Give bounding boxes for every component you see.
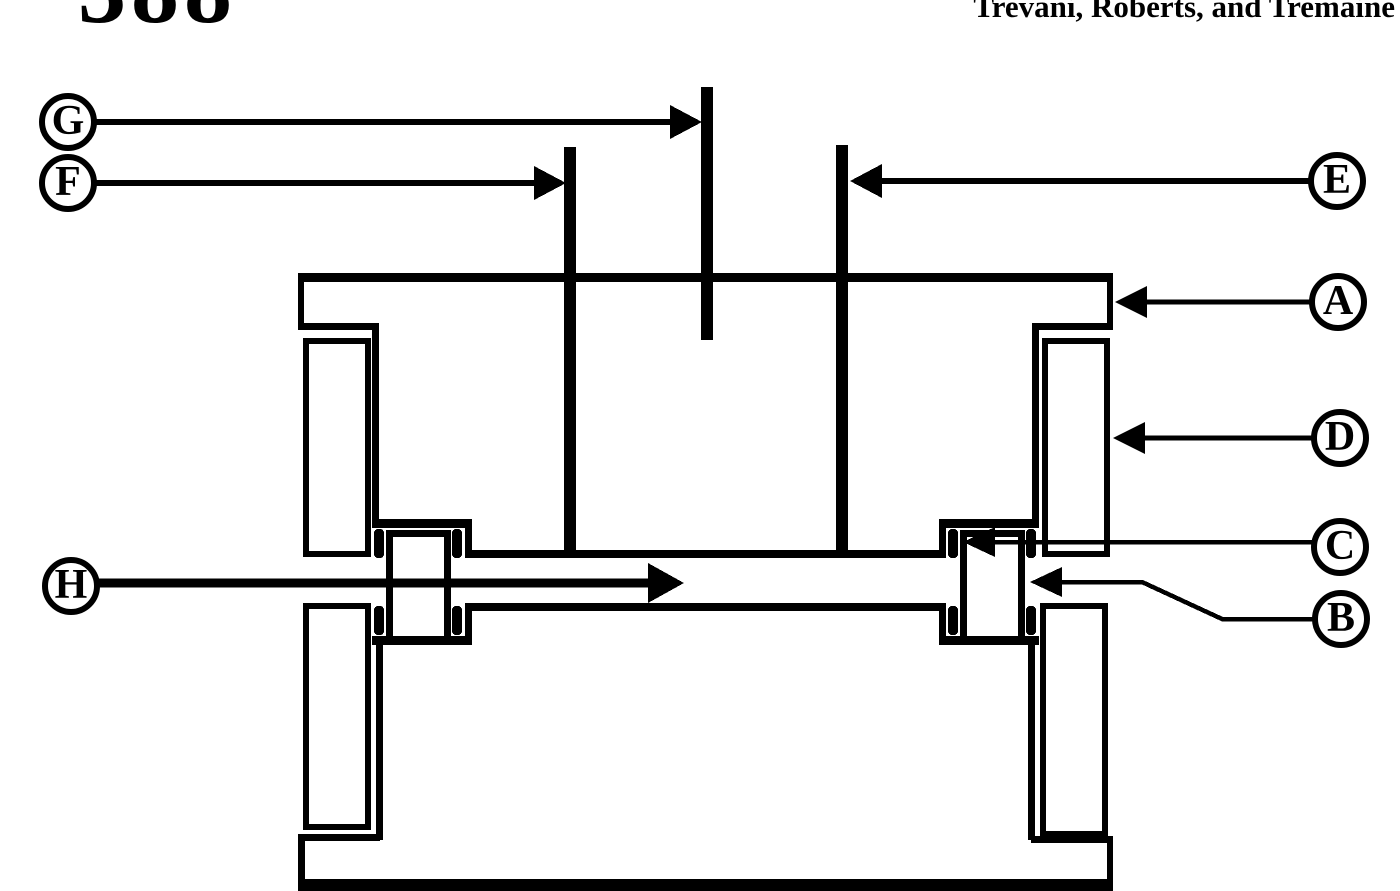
left-window-seal-bottom-inner [452,606,462,635]
callout-label-A: A [1309,273,1367,331]
scanned-paper-page: 388 Trevani, Roberts, and Tremaine [0,0,1400,891]
arrowhead-D [1113,422,1145,454]
left-window-seal-top-inner [452,529,462,558]
callout-label-C: C [1311,518,1369,576]
callout-label-B: B [1312,590,1370,648]
callout-label-E: E [1308,152,1366,210]
center-tube-G [701,87,713,340]
lower-inner-wall-left [376,641,383,840]
upper-inner-wall-left [372,323,379,528]
callout-label-F: F [39,154,97,212]
bottom-plate-bottom-edge [298,879,1113,891]
leader-line-B [1058,582,1313,619]
bottom-plate-right-top [1031,836,1113,843]
bottom-plate-left-top [298,834,380,841]
lower-left-block [306,606,368,827]
right-tube-E [836,145,848,554]
light-path-channel-bottom [468,603,943,611]
upper-inner-wall-right [1032,323,1039,528]
apparatus-cross-section-figure [0,0,1400,891]
right-window-seal-top-inner [948,529,958,558]
arrowhead-A [1115,286,1147,318]
top-plate-right-underside [1032,323,1113,330]
top-plate-left-underside [298,323,379,330]
left-seat-top-shoulder [372,519,472,528]
upper-left-block [306,341,368,554]
right-seat-top-shoulder [939,519,1039,528]
left-window-seal-bottom-outer [374,606,384,635]
arrowhead-H [648,563,684,603]
callout-label-G: G [39,93,97,151]
upper-right-block [1045,341,1107,554]
arrowhead-F [534,166,566,200]
lower-right-block [1043,606,1105,834]
top-plate-left-edge [298,273,304,330]
left-window-seal-top-outer [374,529,384,558]
callout-label-D: D [1311,409,1369,467]
top-plate-right-edge [1107,273,1113,330]
light-path-channel-top [468,550,943,558]
callout-label-H: H [42,557,100,615]
arrowhead-G [670,105,702,139]
arrowhead-B [1030,567,1062,597]
left-tube-F [564,147,576,554]
right-window-seal-bottom-inner [948,606,958,635]
lower-inner-wall-right [1028,641,1035,840]
right-window-seal-bottom-outer [1026,606,1036,635]
arrowhead-E [850,164,882,198]
